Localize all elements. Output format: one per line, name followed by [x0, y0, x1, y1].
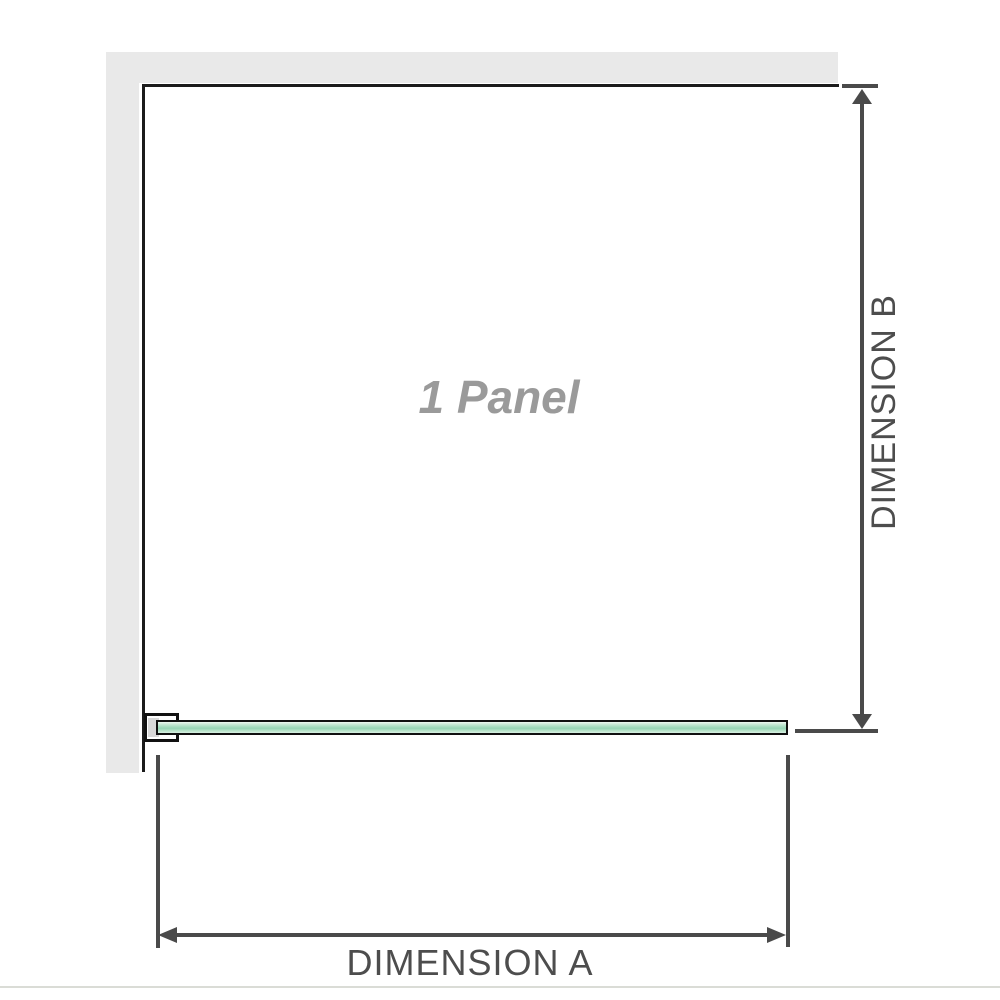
- dimension-b-line: [860, 102, 864, 714]
- dimension-b-label: DIMENSION B: [867, 272, 901, 552]
- dimension-b-top-tick: [842, 84, 878, 88]
- wall-top-segment: [106, 52, 838, 83]
- wall-left-segment: [106, 52, 139, 773]
- panel-left-edge-line: [142, 84, 145, 772]
- panel-count-label: 1 Panel: [349, 371, 649, 423]
- arrow-right-icon: [767, 927, 786, 943]
- arrow-up-icon: [852, 89, 872, 104]
- dimension-a-right-extension-line: [786, 755, 790, 947]
- panel-top-edge-line: [143, 84, 839, 87]
- dimension-b-bottom-tick: [795, 729, 878, 733]
- glass-panel-plan-view: [156, 720, 788, 735]
- diagram-canvas: 1 Panel DIMENSION B DIMENSION A: [0, 0, 1000, 1000]
- dimension-a-label: DIMENSION A: [320, 943, 620, 983]
- arrow-down-icon: [852, 714, 872, 729]
- dimension-a-line: [175, 933, 769, 937]
- arrow-left-icon: [158, 927, 177, 943]
- dimension-a-left-extension-line: [156, 755, 160, 948]
- bottom-divider-line: [0, 986, 1000, 988]
